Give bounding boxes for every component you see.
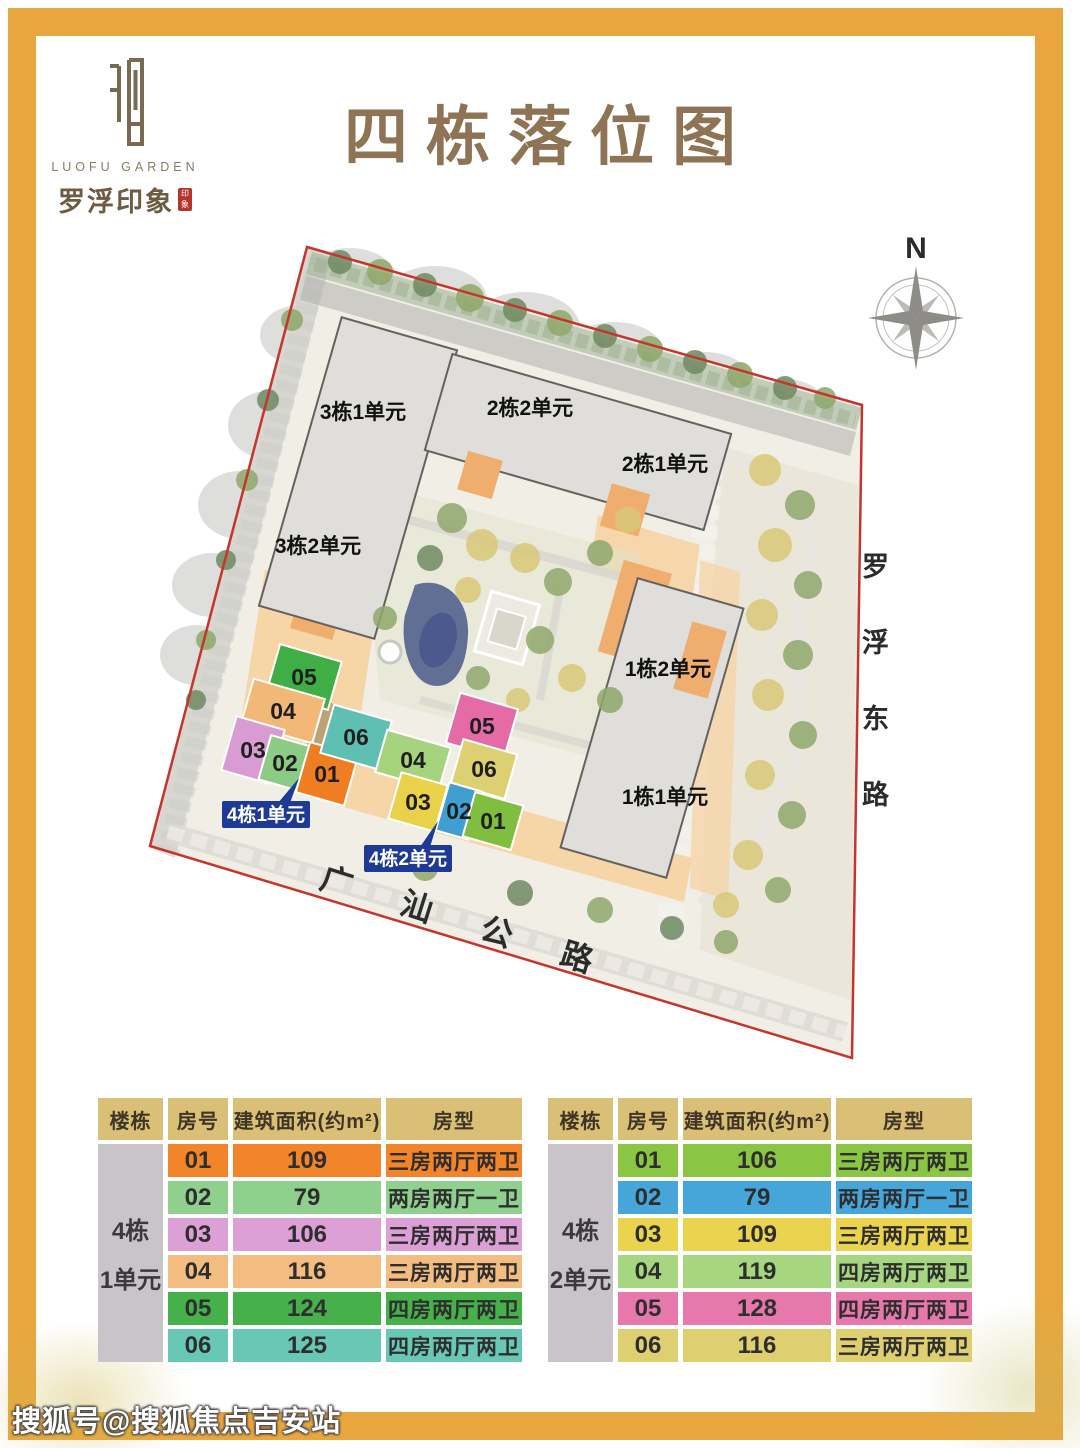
table-cell-no: 06 xyxy=(618,1329,678,1362)
table-cell-area: 116 xyxy=(683,1329,831,1362)
column-header-area: 建筑面积(约m²) xyxy=(233,1098,381,1140)
unit-name: 2单元 xyxy=(550,1260,611,1295)
column-header-type: 房型 xyxy=(386,1098,522,1140)
table-cell-type: 三房两厅两卫 xyxy=(386,1144,522,1177)
compass-north-label: N xyxy=(905,232,927,265)
table-cell-type: 四房两厅两卫 xyxy=(386,1292,522,1325)
block-label: 05 xyxy=(469,713,495,739)
table-cell-no: 05 xyxy=(618,1292,678,1325)
callout-label: 4栋1单元 xyxy=(227,803,305,826)
table-cell-area: 124 xyxy=(233,1292,381,1325)
column-header-room: 房号 xyxy=(618,1098,678,1140)
table-cell-area: 106 xyxy=(683,1144,831,1177)
poster: LUOFU GARDEN 罗浮印象 印象 四栋落位图 xyxy=(0,0,1080,1448)
table-cell-area: 128 xyxy=(683,1292,831,1325)
column-header-type: 房型 xyxy=(836,1098,972,1140)
table-cell-area: 109 xyxy=(683,1218,831,1251)
table-cell-no: 03 xyxy=(618,1218,678,1251)
callout-label: 4栋2单元 xyxy=(369,847,447,870)
table-cell-type: 四房两厅两卫 xyxy=(836,1292,972,1325)
table-cell-no: 04 xyxy=(618,1255,678,1288)
unit2-table: 楼栋 房号 建筑面积(约m²) 房型 4栋 2单元 01 106 三房两厅两卫 … xyxy=(548,1098,972,1362)
table-cell-no: 06 xyxy=(168,1329,228,1362)
block-label: 03 xyxy=(240,737,266,763)
fountain xyxy=(379,641,401,663)
table-cell-type: 四房两厅两卫 xyxy=(386,1329,522,1362)
block-label: 03 xyxy=(405,789,431,815)
table-cell-area: 125 xyxy=(233,1329,381,1362)
building-label-1-1: 1栋1单元 xyxy=(622,785,708,809)
unit-name: 1单元 xyxy=(100,1260,161,1295)
table-cell-area: 106 xyxy=(233,1218,381,1251)
block-label: 06 xyxy=(343,724,369,750)
table-cell-no: 01 xyxy=(618,1144,678,1177)
block-label: 01 xyxy=(480,808,506,834)
table-cell-no: 03 xyxy=(168,1218,228,1251)
table-cell-type: 四房两厅两卫 xyxy=(836,1255,972,1288)
table-cell-type: 三房两厅两卫 xyxy=(836,1329,972,1362)
building-label-1-2: 1栋2单元 xyxy=(625,657,711,681)
table-cell-no: 02 xyxy=(618,1181,678,1214)
building-name: 4栋 xyxy=(562,1211,599,1246)
block-label: 01 xyxy=(314,761,340,787)
table-cell-area: 116 xyxy=(233,1255,381,1288)
watermark: 搜狐号@搜狐焦点吉安站 xyxy=(12,1398,341,1440)
column-header-building: 楼栋 xyxy=(98,1098,163,1140)
table-cell-area: 119 xyxy=(683,1255,831,1288)
building-name: 4栋 xyxy=(112,1211,149,1246)
building-label-2-1: 2栋1单元 xyxy=(622,452,708,476)
building-cell: 4栋 1单元 xyxy=(98,1144,163,1362)
table-cell-type: 三房两厅两卫 xyxy=(836,1218,972,1251)
block-label: 04 xyxy=(270,698,296,724)
table-cell-type: 两房两厅一卫 xyxy=(386,1181,522,1214)
column-header-building: 楼栋 xyxy=(548,1098,613,1140)
table-cell-no: 04 xyxy=(168,1255,228,1288)
table-cell-area: 79 xyxy=(233,1181,381,1214)
table-cell-no: 05 xyxy=(168,1292,228,1325)
table-cell-no: 02 xyxy=(168,1181,228,1214)
block-label: 02 xyxy=(272,750,298,776)
table-cell-type: 两房两厅一卫 xyxy=(836,1181,972,1214)
building-label-3-1: 3栋1单元 xyxy=(320,400,406,424)
table-cell-type: 三房两厅两卫 xyxy=(836,1144,972,1177)
table-cell-type: 三房两厅两卫 xyxy=(386,1255,522,1288)
block-label: 05 xyxy=(291,664,317,690)
column-header-room: 房号 xyxy=(168,1098,228,1140)
column-header-area: 建筑面积(约m²) xyxy=(683,1098,831,1140)
block-label: 04 xyxy=(400,747,426,773)
table-cell-area: 109 xyxy=(233,1144,381,1177)
compass-icon: N xyxy=(868,232,964,370)
building-label-3-2: 3栋2单元 xyxy=(275,534,361,558)
block-label: 02 xyxy=(446,798,472,824)
table-cell-area: 79 xyxy=(683,1181,831,1214)
table-cell-no: 01 xyxy=(168,1144,228,1177)
road-label-east: 罗浮东路 xyxy=(858,552,888,856)
table-cell-type: 三房两厅两卫 xyxy=(386,1218,522,1251)
building-label-2-2: 2栋2单元 xyxy=(487,396,573,420)
block-label: 06 xyxy=(471,756,497,782)
unit1-table: 楼栋 房号 建筑面积(约m²) 房型 4栋 1单元 01 109 三房两厅两卫 … xyxy=(98,1098,522,1362)
building-cell: 4栋 2单元 xyxy=(548,1144,613,1362)
